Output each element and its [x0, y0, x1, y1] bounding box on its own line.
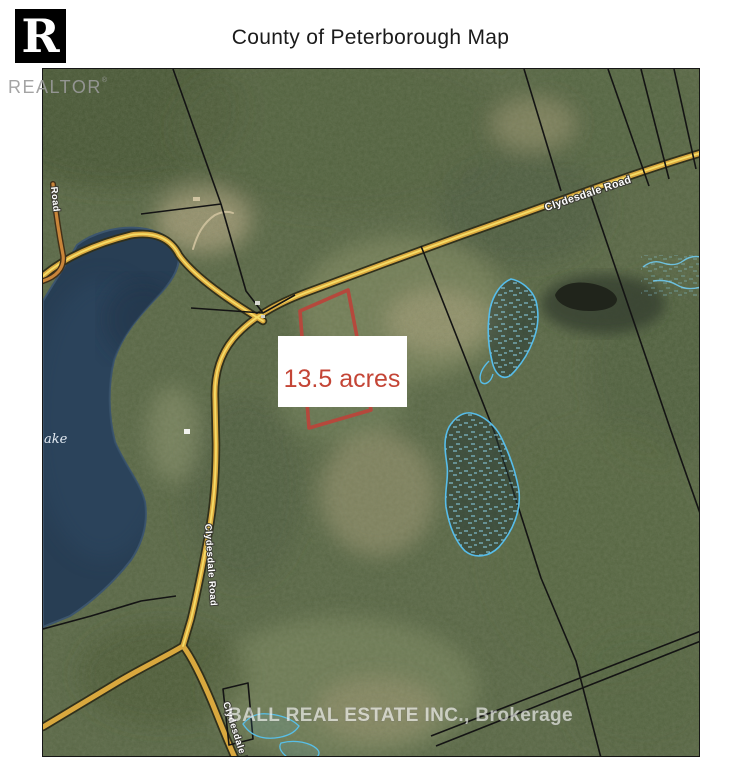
forest-terrain	[43, 69, 700, 757]
realtor-brand: REALTOR	[8, 77, 102, 97]
page-title: County of Peterborough Map	[0, 26, 741, 50]
realtor-logo-letter: R	[20, 11, 61, 61]
brokerage-watermark: BALL REAL ESTATE INC., Brokerage	[228, 705, 573, 726]
listing-map-page: County of Peterborough Map R REALTOR®	[0, 0, 741, 768]
realtor-logo-icon: R	[15, 9, 66, 63]
lake-label: ake	[44, 432, 68, 447]
acreage-label: 13.5 acres	[284, 365, 401, 393]
aerial-map-canvas: 13.5 acres Clydesdale Road Clydesdale Ro…	[43, 69, 700, 757]
realtor-logo-text: REALTOR®	[8, 77, 107, 98]
acreage-callout: 13.5 acres	[278, 336, 407, 407]
registered-mark: ®	[102, 77, 107, 84]
property-map: 13.5 acres Clydesdale Road Clydesdale Ro…	[42, 68, 700, 757]
